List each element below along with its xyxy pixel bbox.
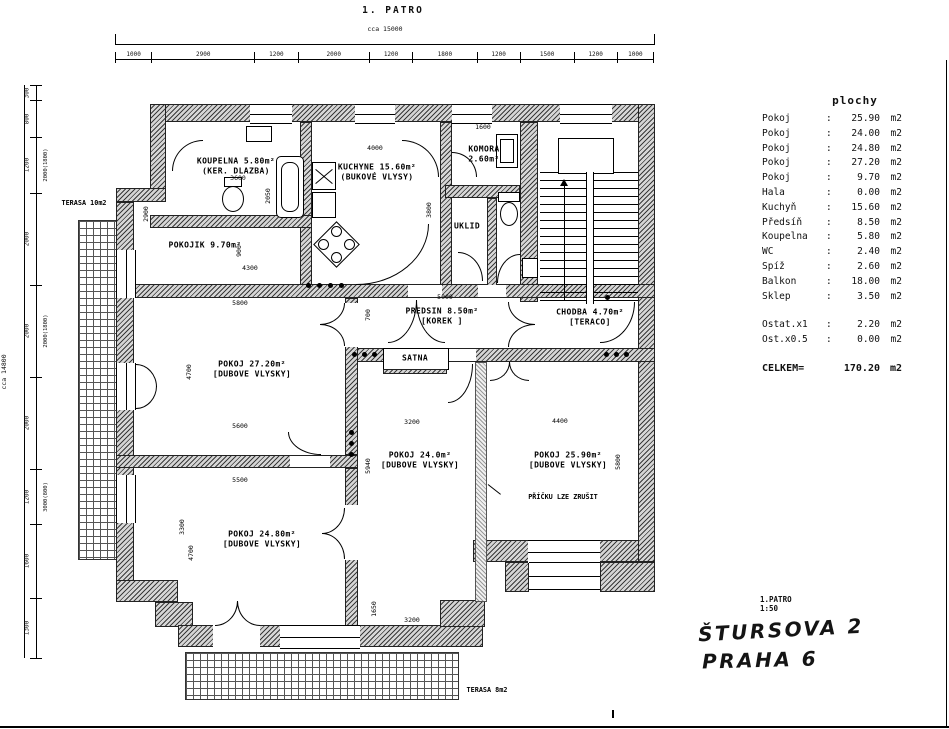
window (560, 104, 612, 124)
dimension-label: 5600 (232, 422, 248, 430)
balcony-railing (529, 562, 600, 590)
room-label: CHODBA 4.70m²[TERACO] (556, 308, 624, 327)
kitchen-unit (312, 192, 336, 218)
room-label: SATNA (402, 353, 428, 363)
column-dot (614, 352, 619, 357)
boiler-inner (500, 139, 514, 163)
column-dot (349, 452, 354, 457)
door-swing (136, 364, 157, 387)
dimension-label: 5800 (614, 454, 622, 470)
door-opening (478, 285, 506, 297)
table-row: Koupelna:5.80m2 (762, 230, 948, 245)
dimension-segment: 800 (30, 100, 42, 137)
wall (600, 562, 655, 592)
top-overall-dimension: cca 15000 (115, 34, 655, 45)
dimension-segment: 12003000(800) (30, 469, 42, 525)
scale-label: 1:50 (760, 604, 792, 613)
door-swing (322, 533, 345, 559)
dimension-label: 4700 (187, 545, 195, 561)
kitchen-counter-arc (356, 224, 429, 285)
dimension-segment: 1200 (369, 52, 412, 63)
stove-burner (344, 239, 355, 250)
window (528, 540, 600, 564)
table-row: Ost.x0.5:0.00m2 (762, 333, 948, 348)
door-swing (497, 254, 520, 283)
dimension-label: 3800 (425, 202, 433, 218)
door-swing (490, 362, 510, 381)
wall (155, 602, 193, 627)
sink (522, 258, 538, 278)
door-swing (322, 508, 345, 534)
dimension-label: 3300 (178, 519, 186, 535)
door-swing (509, 362, 529, 381)
door-swing (237, 601, 260, 626)
dimension-label: 1650 (370, 601, 378, 617)
note-leader-line (488, 484, 501, 495)
table-row: Spíž:2.60m2 (762, 260, 948, 275)
door-opening (345, 505, 358, 560)
dimension-label: 5000 (437, 293, 453, 301)
stair-landing (558, 138, 614, 174)
dimension-segment: 1300 (30, 598, 42, 658)
stove-burner (331, 226, 342, 237)
table-row: Pokoj:24.80m2 (762, 142, 948, 157)
dimension-label: 900 (235, 245, 243, 257)
wall (638, 104, 655, 562)
wall (440, 122, 452, 288)
dimension-label: 1600 (475, 123, 491, 131)
door-opening (448, 349, 476, 361)
dimension-segment: 2000 (30, 377, 42, 469)
table-row: Pokoj:9.70m2 (762, 171, 948, 186)
terrace-left (78, 220, 118, 560)
annotation-label: PŘÍČKU LZE ZRUŠIT (528, 493, 598, 501)
wall (383, 369, 447, 374)
dimension-segment: 300 (30, 85, 42, 100)
stove-burner (318, 239, 329, 250)
table-row: Pokoj:27.20m2 (762, 156, 948, 171)
room-label: POKOJIK 9.70m² (168, 240, 241, 250)
column-dot (604, 352, 609, 357)
dimension-segment: 1200 (254, 52, 297, 63)
room-label: UKLID (454, 221, 480, 231)
table-row: Sklep:3.50m2 (762, 290, 948, 305)
stove-burner (331, 252, 342, 263)
stair-arrow (560, 179, 568, 186)
door-swing (215, 601, 238, 626)
wall (487, 198, 497, 288)
dimension-segment: 1200 (574, 52, 617, 63)
window (116, 363, 136, 410)
dimension-segment: 1200 (477, 52, 520, 63)
room-label: POKOJ 27.20m²[DUBOVE VLYSKY] (213, 360, 291, 379)
door-swing (136, 386, 157, 409)
room-label: KOMORA2.60m² (468, 145, 499, 164)
column-dot (624, 352, 629, 357)
door-swing (320, 324, 345, 346)
room-label: POKOJ 25.90m²[DUBOVE VLYSKY] (529, 451, 607, 470)
dimension-label: 3200 (404, 418, 420, 426)
door-swing (508, 302, 535, 325)
dimension-segment: 2900 (151, 52, 254, 63)
window (116, 475, 136, 523)
stair-start-dot (605, 295, 610, 300)
dimension-segment: 1800 (412, 52, 476, 63)
table-row: Ostat.x1:2.20m2 (762, 318, 948, 333)
top-dimension-chain: 1000290012002000120018001200150012001000 (115, 52, 654, 63)
stair-direction-line (564, 186, 565, 300)
dimension-label: 2050 (264, 188, 272, 204)
room-label: POKOJ 24.0m²[DUBOVE VLYSKY] (381, 451, 459, 470)
dimension-label: 3600 (230, 174, 246, 182)
dimension-segment: 1000 (617, 52, 653, 63)
dimension-label: 2900 (142, 206, 150, 222)
column-dot (362, 352, 367, 357)
table-row: Kuchyň:15.60m2 (762, 201, 948, 216)
dimension-label: 4300 (242, 264, 258, 272)
areas-table-title: plochy (762, 94, 948, 107)
room-label: KOUPELNA 5.80m²(KER. DLAZBA) (197, 157, 275, 176)
scan-edge (0, 726, 949, 728)
annotation-label: TERASA 8m2 (467, 686, 508, 694)
left-dimension-chain: 30080012002000(1800)200020002000(1800)20… (30, 85, 42, 659)
toilet (500, 202, 518, 226)
door-swing (448, 364, 473, 403)
column-dot (317, 283, 322, 288)
room-label: POKOJ 24.80m²[DUBOVE VLYSKY] (223, 530, 301, 549)
sink (246, 126, 272, 142)
wall (505, 562, 529, 592)
floorplan-sheet: 1. PATRO cca 15000 100029001200200012001… (0, 0, 949, 729)
table-row: Pokoj:25.90m2 (762, 112, 948, 127)
dimension-segment: 20002000(1800) (30, 285, 42, 377)
table-row: Hala:0.00m2 (762, 186, 948, 201)
kitchen-sink-unit (312, 162, 336, 190)
areas-table-rows: Pokoj:25.90m2Pokoj:24.00m2Pokoj:24.80m2P… (762, 112, 948, 304)
dimension-label: 3200 (404, 616, 420, 624)
dimension-label: 5500 (232, 476, 248, 484)
dimension-label: 700 (364, 309, 372, 321)
column-dot (349, 441, 354, 446)
table-row: Předsíň:8.50m2 (762, 216, 948, 231)
column-dot (349, 430, 354, 435)
wall (116, 580, 178, 602)
column-dot (328, 283, 333, 288)
table-row: Pokoj:24.00m2 (762, 127, 948, 142)
door-opening (213, 625, 260, 647)
stair-stringer (586, 172, 594, 304)
total-value: 170.20 (834, 362, 880, 377)
room-label: KUCHYNE 15.60m²(BUKOVÉ VLYSY) (338, 163, 416, 182)
dimension-segment: 2000 (30, 193, 42, 285)
removable-partition-wall (475, 362, 487, 602)
window (250, 104, 292, 124)
door-opening (345, 303, 358, 347)
table-row: WC:2.40m2 (762, 245, 948, 260)
annotation-label: TERASA 10m2 (61, 199, 106, 207)
column-dot (339, 283, 344, 288)
wall (440, 600, 485, 627)
door-swing (288, 432, 321, 455)
wall (116, 188, 166, 202)
toilet-tank (498, 192, 520, 202)
total-unit: m2 (880, 362, 902, 377)
door-swing (508, 324, 535, 347)
areas-table-total-row: CELKEM= 170.20 m2 (762, 362, 948, 377)
room-label: PREDSIN 8.50m²[KOREK ] (405, 307, 478, 326)
areas-table-extra-rows: Ostat.x1:2.20m2Ost.x0.5:0.00m2 (762, 318, 948, 348)
total-label: CELKEM= (762, 362, 826, 377)
window (452, 104, 492, 124)
page-title: 1. PATRO (362, 5, 424, 16)
areas-table: plochy Pokoj:25.90m2Pokoj:24.00m2Pokoj:2… (762, 94, 948, 377)
terrace-bottom (185, 652, 459, 700)
window (355, 104, 395, 124)
column-dot (306, 283, 311, 288)
floor-label: 1.PATRO (760, 595, 792, 604)
dimension-label: 5800 (232, 299, 248, 307)
toilet (222, 186, 244, 212)
window (116, 250, 136, 298)
door-opening (290, 456, 330, 467)
stove (314, 222, 358, 266)
dimension-label: 4700 (185, 364, 193, 380)
handwritten-address-line2: PRAHA 6 (702, 646, 819, 673)
bathtub-inner (281, 162, 299, 212)
dimension-label: 5940 (364, 458, 372, 474)
table-row: Balkon:18.00m2 (762, 275, 948, 290)
handwritten-address-line1: ŠTURSOVA 2 (697, 614, 864, 647)
door-swing (320, 303, 345, 325)
scan-mark (612, 710, 614, 718)
scan-edge (946, 60, 947, 726)
dimension-segment: 1000 (115, 52, 151, 63)
door-swing (458, 252, 483, 281)
scale-block: 1.PATRO 1:50 (760, 595, 792, 613)
dimension-label: 4000 (367, 144, 383, 152)
dimension-label: 4400 (552, 417, 568, 425)
window (280, 625, 360, 649)
dimension-segment: 1500 (520, 52, 574, 63)
column-dot (352, 352, 357, 357)
dimension-segment: 1600 (30, 524, 42, 598)
dimension-segment: 2000 (298, 52, 369, 63)
dimension-segment: 12002000(1800) (30, 137, 42, 193)
column-dot (372, 352, 377, 357)
